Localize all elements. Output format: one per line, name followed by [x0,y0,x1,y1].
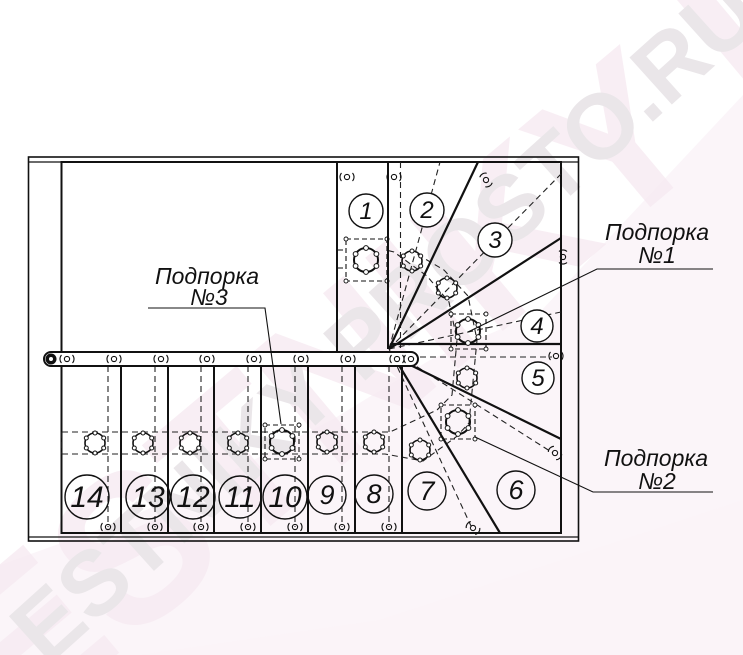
svg-text:2: 2 [419,197,433,224]
svg-text:4: 4 [530,313,543,340]
svg-text:6: 6 [508,475,524,505]
step-badge-13: 13 [126,475,170,519]
svg-text:12: 12 [176,481,210,514]
stringer-beam [44,352,418,366]
step-badge-5: 5 [522,362,554,394]
step-badge-10: 10 [263,475,307,519]
svg-text:13: 13 [131,481,165,514]
svg-text:7: 7 [419,476,435,506]
step-badge-12: 12 [171,475,215,519]
svg-text:5: 5 [531,365,545,392]
svg-text:9: 9 [319,480,334,510]
step-badge-14: 14 [65,475,109,519]
svg-text:14: 14 [70,481,103,514]
stair-plan-page: LESTNIKY PROSTO.RU LESTNIKY PROSTO.RU [0,0,743,655]
svg-text:№1: №1 [638,242,676,268]
fastener-icon [340,173,354,181]
svg-text:№3: №3 [190,284,228,310]
stair-plan-drawing: LESTNIKY PROSTO.RU LESTNIKY PROSTO.RU [0,0,743,655]
svg-text:11: 11 [224,481,255,514]
background-watermark: LESTNIKY PROSTO.RU LESTNIKY PROSTO.RU [0,0,743,655]
step-badge-11: 11 [219,476,261,518]
step-badge-3: 3 [478,223,512,257]
step-badge-1: 1 [349,194,383,228]
svg-text:8: 8 [366,479,381,509]
svg-text:1: 1 [359,198,372,225]
step-badge-2: 2 [410,193,444,227]
svg-text:3: 3 [488,227,502,254]
svg-text:№2: №2 [638,468,676,494]
svg-text:10: 10 [268,481,302,514]
step-badge-4: 4 [521,310,553,342]
